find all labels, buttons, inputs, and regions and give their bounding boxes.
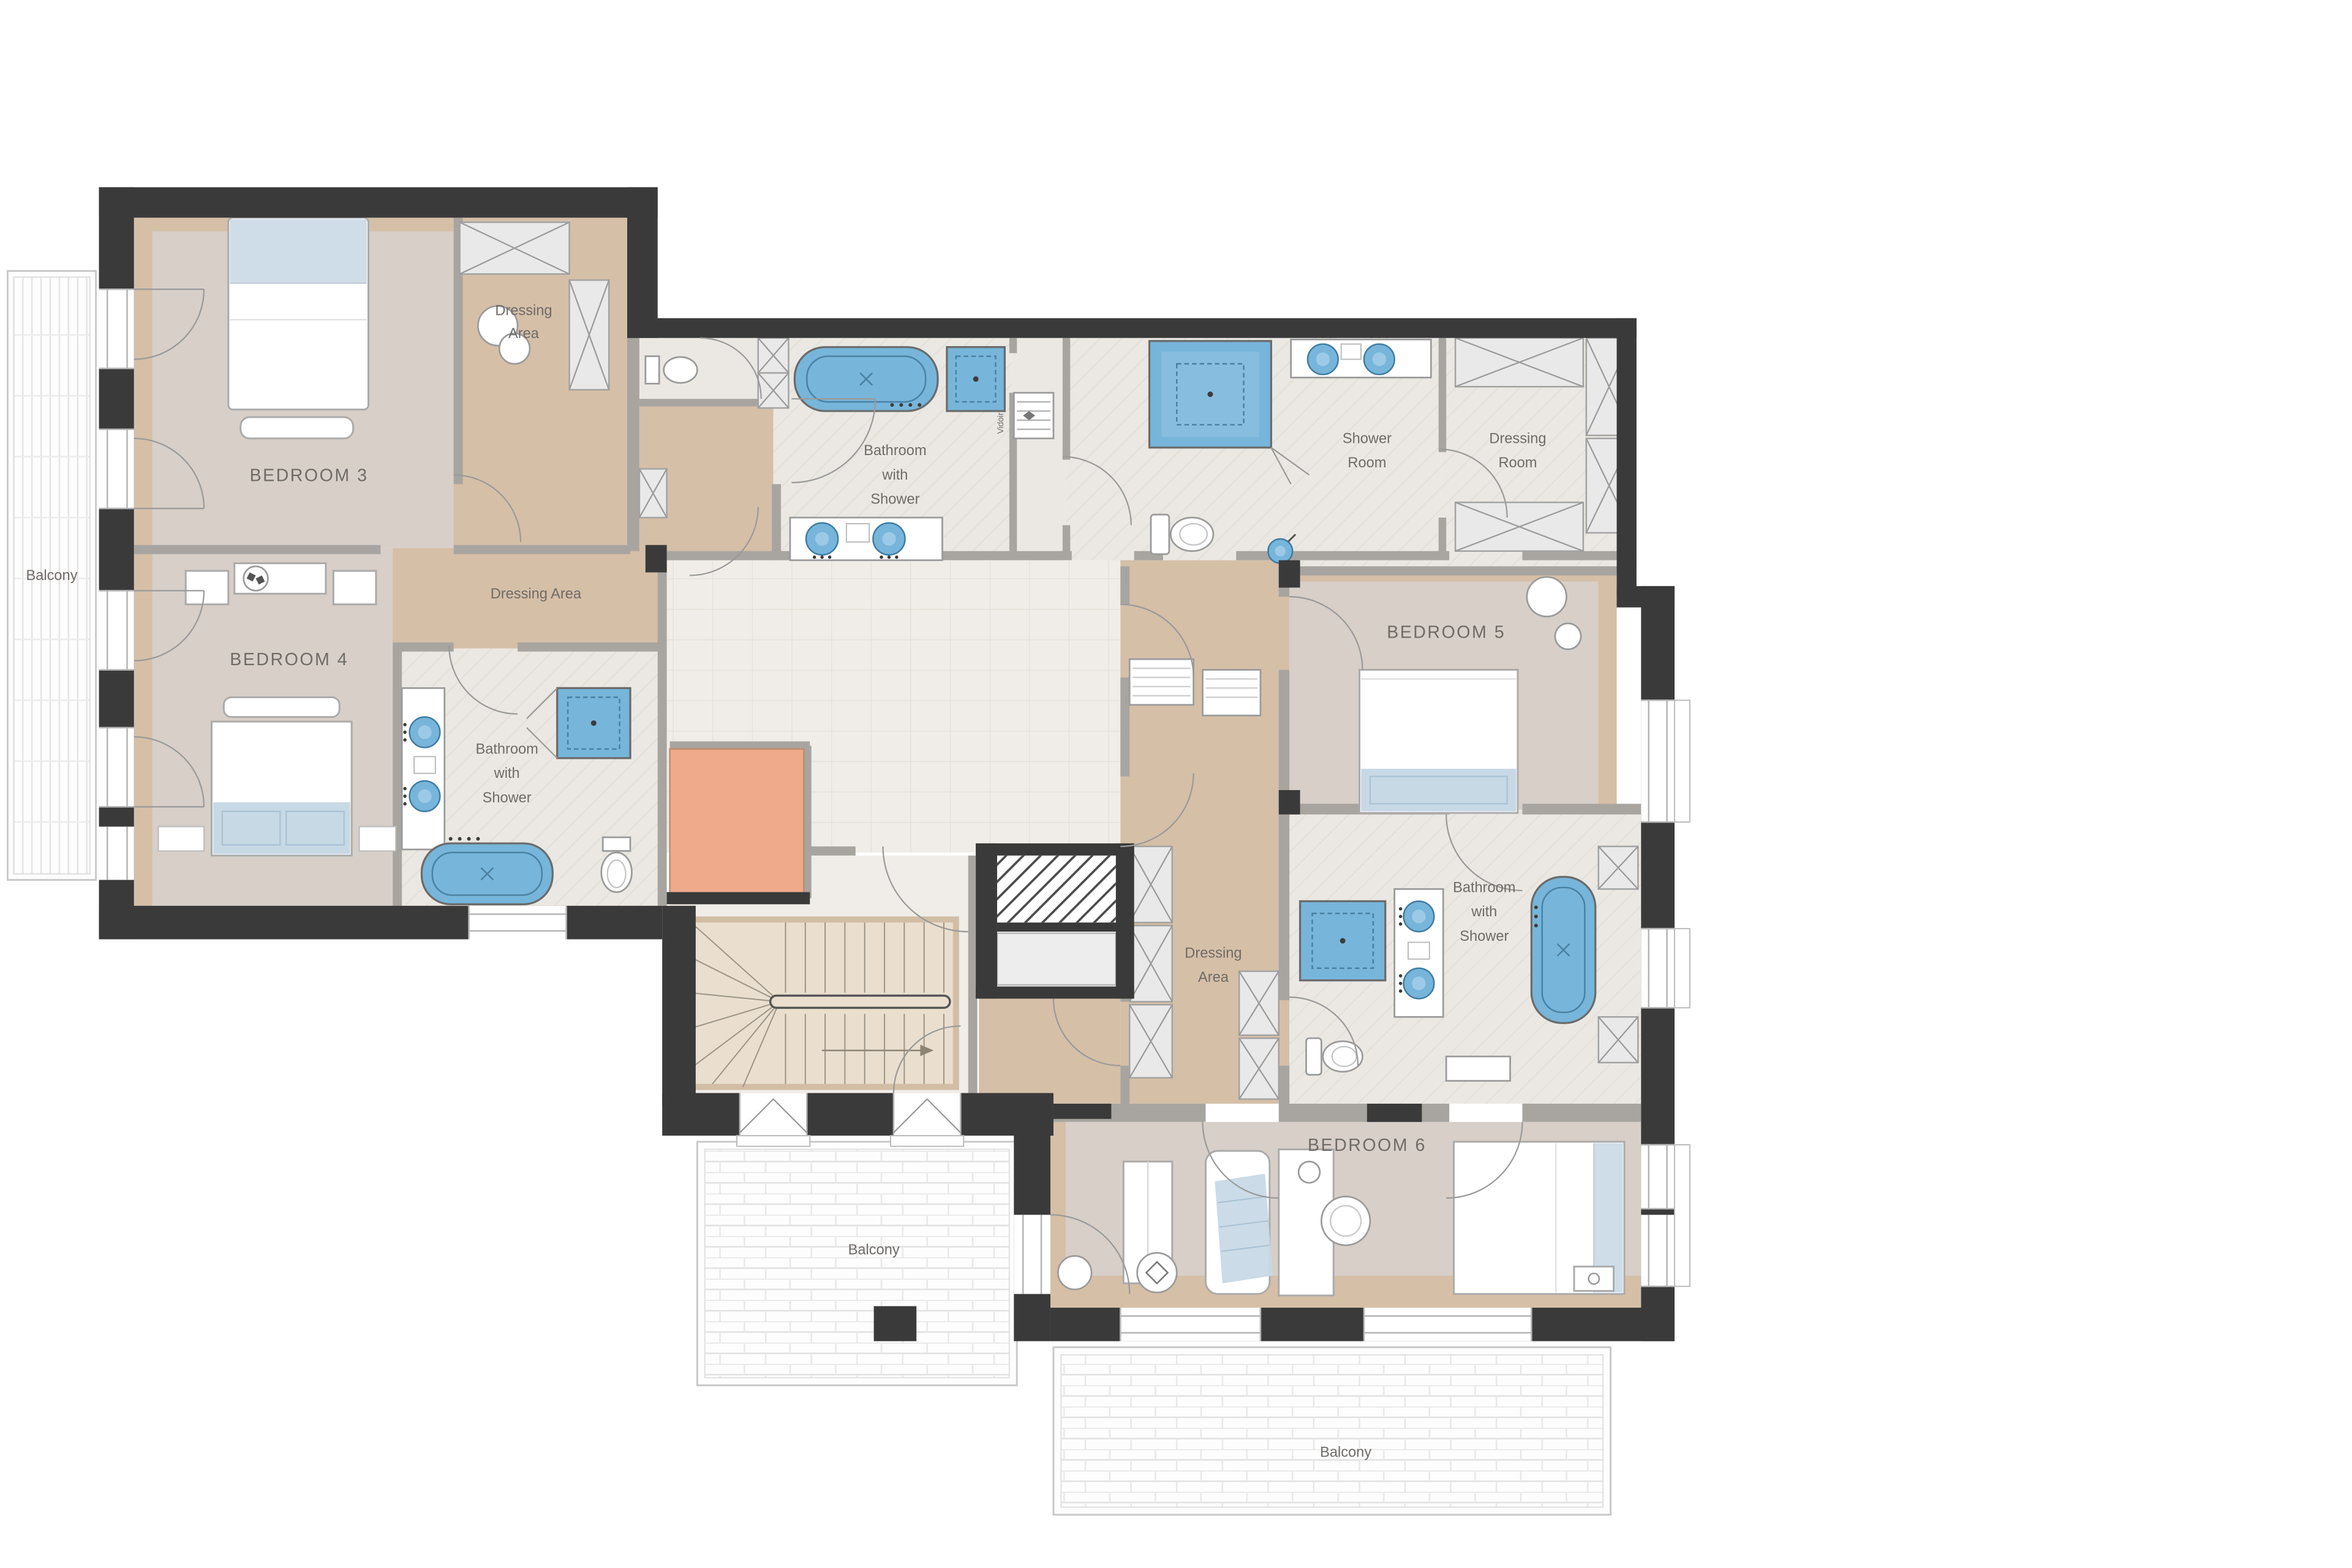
vidoir-floor bbox=[1012, 338, 1066, 571]
stair-rail bbox=[771, 995, 950, 1008]
bathroom-left-label: Bathroom bbox=[475, 741, 538, 757]
bathtub bbox=[794, 347, 938, 411]
floorplan-drawing: Dressing Area BEDROOM 3 Balcony BEDROOM … bbox=[0, 0, 2352, 1568]
dressing-area-top-label: Dressing bbox=[495, 303, 552, 318]
bathtub bbox=[1531, 877, 1595, 1023]
cabinet bbox=[1129, 659, 1193, 705]
window bbox=[469, 906, 567, 940]
desk-lamp bbox=[1298, 1161, 1320, 1183]
nightstand bbox=[186, 571, 228, 605]
svg-text:with: with bbox=[494, 766, 520, 782]
balcony-door bbox=[1014, 1215, 1050, 1294]
rug bbox=[158, 827, 204, 851]
lift-shaft bbox=[670, 749, 804, 895]
toilet bbox=[646, 356, 698, 384]
svg-text:with: with bbox=[1471, 904, 1497, 920]
bathroom-top-label: Bathroom bbox=[864, 443, 926, 459]
balcony-door bbox=[737, 1093, 810, 1147]
dressing-room-label: Dressing bbox=[1489, 431, 1546, 447]
svg-text:Area: Area bbox=[1198, 970, 1229, 986]
window bbox=[1641, 1145, 1675, 1208]
window bbox=[99, 289, 134, 368]
bed-bench bbox=[224, 697, 339, 717]
vidoir-label: Vidoir bbox=[996, 412, 1005, 434]
nightstand bbox=[1574, 1267, 1614, 1291]
cabinet bbox=[1202, 670, 1260, 716]
bathroom-right-label: Bathroom bbox=[1453, 880, 1515, 895]
svg-text:Room: Room bbox=[1347, 455, 1386, 471]
balcony-bottom-right-label: Balcony bbox=[1320, 1445, 1371, 1461]
side-table bbox=[1058, 1256, 1091, 1289]
balcony-bottom-right bbox=[1053, 1347, 1611, 1515]
rug bbox=[360, 827, 396, 851]
bedroom6-entry-floor bbox=[979, 990, 1120, 1104]
soap-tray bbox=[1408, 942, 1430, 959]
soap-tray bbox=[846, 524, 869, 542]
balcony-door bbox=[891, 1093, 963, 1147]
vidoir-fixture bbox=[1014, 393, 1053, 439]
dressing-area-b6-label: Dressing bbox=[1185, 945, 1242, 961]
staircase bbox=[688, 919, 956, 1087]
balcony-door bbox=[99, 827, 134, 880]
bedroom-4-label: BEDROOM 4 bbox=[230, 650, 349, 669]
svg-text:Shower: Shower bbox=[483, 790, 532, 806]
stool bbox=[1137, 1253, 1177, 1293]
svg-text:with: with bbox=[881, 467, 908, 483]
window bbox=[1641, 1215, 1675, 1286]
bedroom-3-furniture bbox=[228, 217, 369, 438]
store-room bbox=[997, 933, 1116, 986]
window bbox=[99, 429, 134, 508]
soap-tray bbox=[1341, 344, 1361, 360]
stool bbox=[1555, 624, 1581, 649]
window bbox=[1120, 1308, 1261, 1341]
void-hatch bbox=[997, 856, 1116, 922]
shower bbox=[1150, 341, 1272, 448]
bedroom-6-label: BEDROOM 6 bbox=[1308, 1136, 1427, 1155]
window bbox=[1641, 929, 1675, 1008]
window bbox=[1364, 1308, 1531, 1341]
chaise-longue bbox=[1205, 1151, 1272, 1294]
soap-tray bbox=[414, 756, 435, 773]
floorplan-page: Dressing Area BEDROOM 3 Balcony BEDROOM … bbox=[0, 0, 2352, 1568]
toilet bbox=[1151, 514, 1213, 554]
window bbox=[99, 728, 134, 807]
cabinet bbox=[1446, 1057, 1510, 1081]
void-area bbox=[997, 856, 1116, 985]
window bbox=[1641, 700, 1675, 822]
bathtub bbox=[421, 837, 552, 904]
toilet bbox=[601, 837, 632, 892]
dressing-area-mid-label: Dressing Area bbox=[491, 586, 582, 602]
balcony-bottom bbox=[697, 1142, 1017, 1385]
shower-room-label: Shower bbox=[1343, 431, 1392, 447]
bedroom-5-label: BEDROOM 5 bbox=[1387, 622, 1506, 642]
svg-text:Area: Area bbox=[508, 326, 540, 342]
window bbox=[99, 590, 134, 669]
bedroom-3-label: BEDROOM 3 bbox=[250, 466, 369, 485]
bed-bench bbox=[241, 417, 353, 439]
balcony-bottom-label: Balcony bbox=[848, 1242, 900, 1258]
svg-text:Shower: Shower bbox=[870, 492, 919, 508]
balcony-left-label: Balcony bbox=[26, 568, 78, 584]
round-table bbox=[1527, 577, 1567, 617]
nightstand bbox=[333, 571, 376, 605]
desk-chair bbox=[1321, 1197, 1370, 1246]
svg-text:Shower: Shower bbox=[1460, 929, 1509, 944]
svg-text:Room: Room bbox=[1498, 455, 1537, 471]
